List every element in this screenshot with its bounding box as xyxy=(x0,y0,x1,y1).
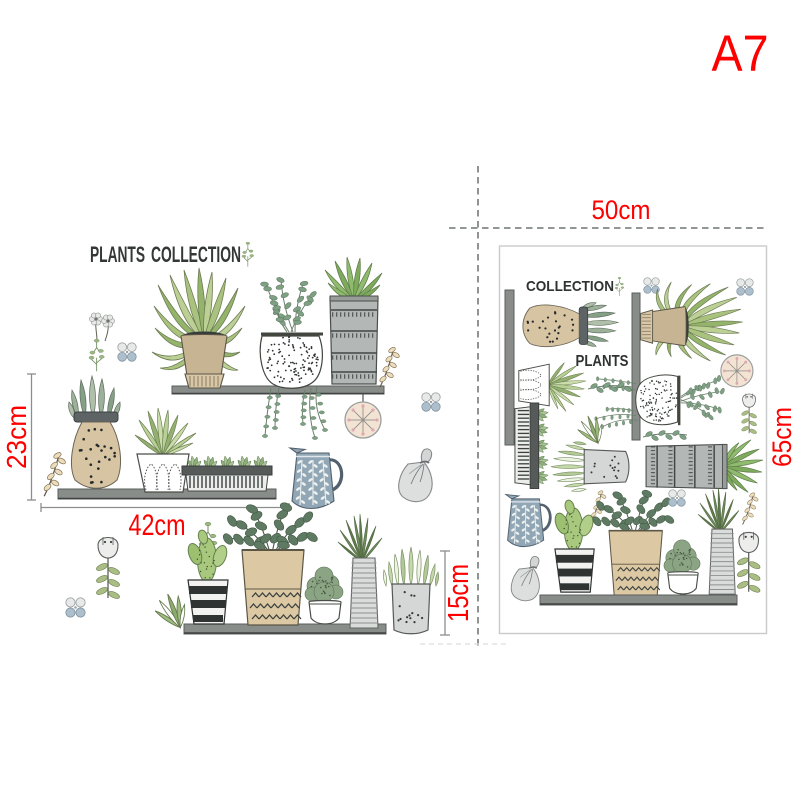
svg-text:PLANTS: PLANTS xyxy=(576,353,629,370)
svg-text:23cm: 23cm xyxy=(1,405,32,469)
svg-text:50cm: 50cm xyxy=(592,195,651,225)
svg-text:COLLECTION: COLLECTION xyxy=(151,242,241,267)
svg-text:15cm: 15cm xyxy=(443,564,475,622)
svg-text:42cm: 42cm xyxy=(129,509,186,542)
svg-text:COLLECTION: COLLECTION xyxy=(526,278,614,295)
svg-text:A7: A7 xyxy=(712,25,769,82)
svg-text:PLANTS: PLANTS xyxy=(90,242,145,267)
svg-text:65cm: 65cm xyxy=(767,407,797,467)
